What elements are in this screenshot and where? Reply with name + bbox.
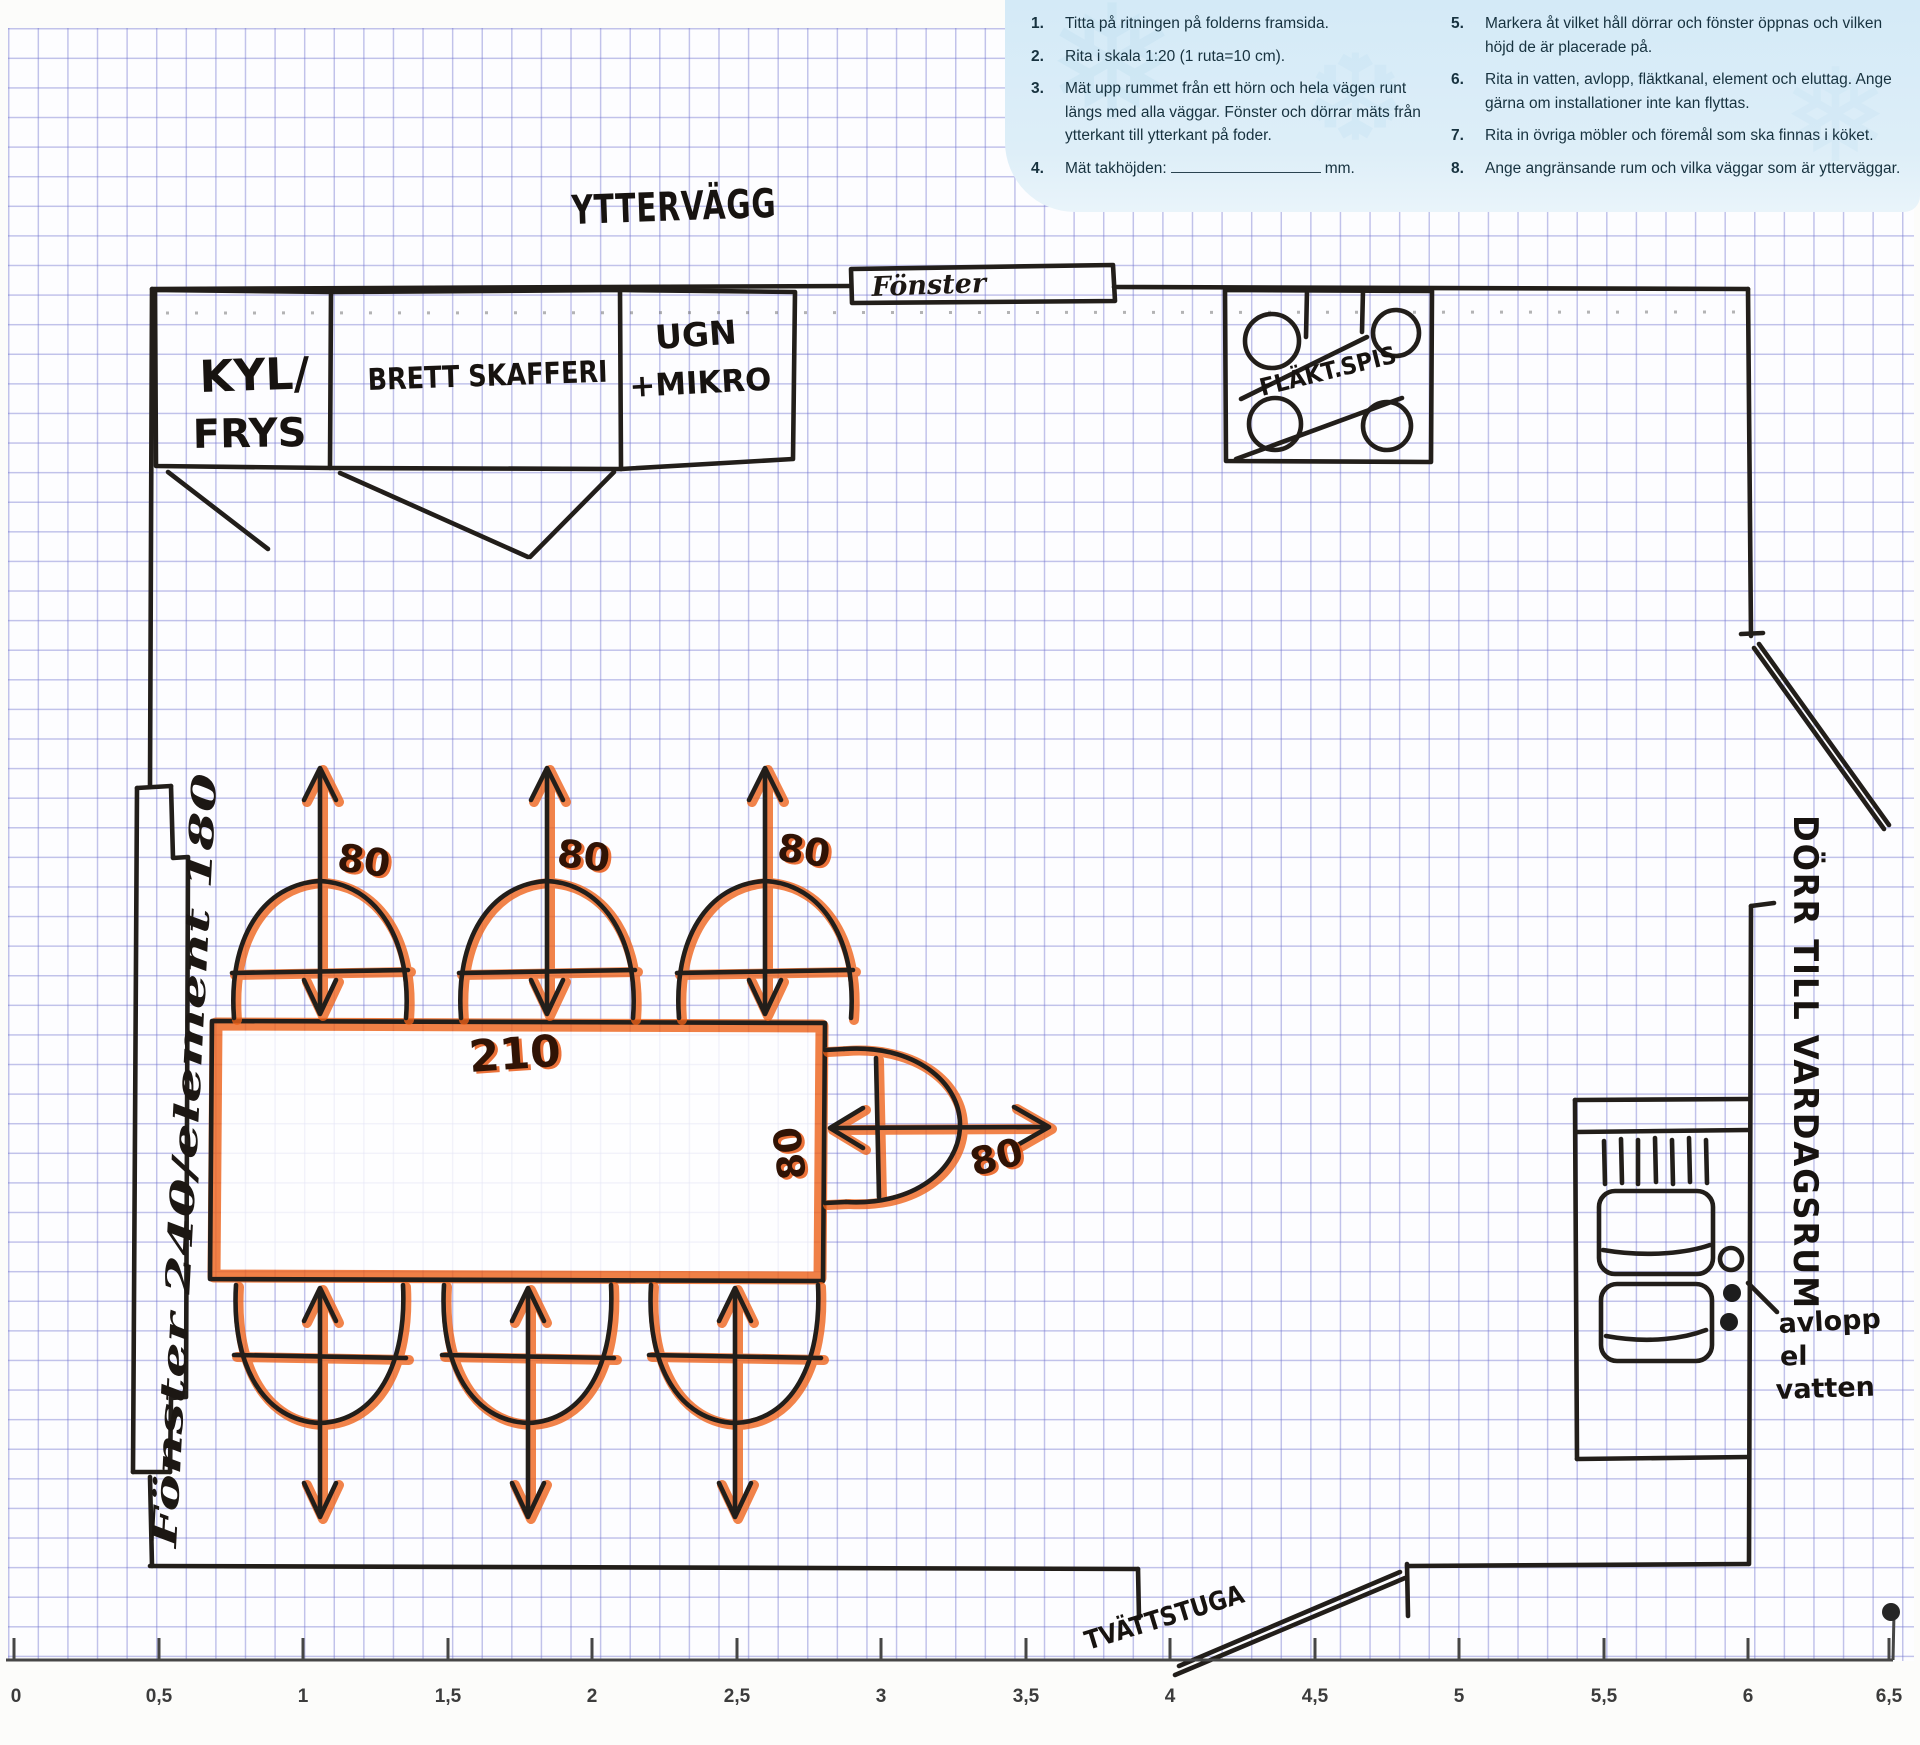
chair-top-1: [232, 768, 411, 1020]
ruler-label: 4: [1165, 1686, 1176, 1707]
floor-plan-drawing: YTTERVÄGG Fönster Fönster 240/element 18…: [0, 0, 1920, 1745]
cabinet-row: KYL/ FRYS BRETT SKAFFERI UGN +MIKRO: [155, 290, 795, 557]
utility-dot: [1723, 1284, 1741, 1302]
utility-dot: [1720, 1313, 1738, 1331]
sink-basin: [1599, 1191, 1713, 1274]
laundry-label: TVÄTTSTUGA: [1081, 1578, 1248, 1657]
chair-top-2: [459, 768, 638, 1020]
cabinet-door-swing: [530, 472, 614, 557]
ruler-label: 5: [1454, 1686, 1465, 1707]
wall-dotted-line: [166, 312, 1738, 313]
utility-label: el: [1780, 1341, 1808, 1372]
water-connection-dot: [1720, 1248, 1742, 1270]
ruler-label: 0: [11, 1686, 22, 1707]
utility-label: vatten: [1775, 1372, 1875, 1406]
chair-dim-label: 80: [775, 825, 833, 876]
pantry-label: BRETT SKAFFERI: [367, 355, 608, 398]
sink-counter: avlopp el vatten: [1575, 1099, 1882, 1459]
utility-pointer-line: [1748, 1283, 1777, 1312]
ruler-label: 2: [587, 1686, 598, 1707]
door-to-living-room: DÖRR TILL VARDAGSRUM: [1754, 644, 1889, 1310]
fridge-label: KYL/: [199, 348, 312, 403]
sink-basin: [1601, 1284, 1712, 1361]
ruler-label: 3,5: [1013, 1686, 1040, 1707]
chair-top-3: [677, 768, 856, 1020]
ruler-label: 2,5: [724, 1686, 751, 1707]
window-top: Fönster: [851, 265, 1115, 303]
cabinet-door-swing: [168, 472, 268, 549]
window-top-label: Fönster: [870, 268, 988, 303]
ruler-label: 3: [876, 1686, 887, 1707]
chair-dim-label: 80: [765, 1124, 815, 1182]
ruler-label: 1,5: [435, 1686, 462, 1707]
ruler-label: 0,5: [146, 1686, 173, 1707]
chair-bottom-2: [442, 1285, 617, 1519]
ruler-label: 4,5: [1302, 1686, 1329, 1707]
utility-label: avlopp: [1778, 1304, 1882, 1340]
cabinet-door-swing: [340, 473, 528, 557]
table-dim-label: 210: [467, 1026, 562, 1083]
stove-burner: [1363, 402, 1411, 450]
scanned-kitchen-plan-sheet: ❅ ❆ ❅ 1. Titta på ritningen på folderns …: [0, 0, 1920, 1745]
ruler-label: 1: [298, 1686, 309, 1707]
ruler-label: 5,5: [1591, 1686, 1618, 1707]
stove-burner: [1249, 398, 1301, 450]
chair-dim-label: 80: [335, 835, 393, 886]
ruler-label: 6: [1743, 1686, 1754, 1707]
ruler-end-dot: [1882, 1603, 1900, 1621]
oven-label: +MIKRO: [629, 362, 773, 405]
ruler-label: 6,5: [1876, 1686, 1903, 1707]
stove-burner: [1245, 314, 1299, 368]
fridge-label: FRYS: [192, 410, 307, 458]
stove-label: FLÄKT.SPIS: [1256, 340, 1399, 402]
stove: FLÄKT.SPIS: [1225, 290, 1432, 462]
chair-bottom-1: [234, 1285, 409, 1519]
chair-dim-label: 80: [555, 831, 612, 880]
oven-label: UGN: [654, 312, 738, 357]
outer-wall-label: YTTERVÄGG: [570, 179, 777, 234]
room-walls: [150, 286, 1774, 1618]
door-living-room-label: DÖRR TILL VARDAGSRUM: [1785, 815, 1826, 1310]
ruler: 0 0,5 1 1,5 2 2,5 3 3,5 4 4,5 5 5,5 6 6,…: [6, 1603, 1903, 1707]
chair-bottom-3: [649, 1285, 824, 1519]
drainboard-hatching: [1604, 1138, 1707, 1184]
chair-end: [825, 1049, 1052, 1205]
